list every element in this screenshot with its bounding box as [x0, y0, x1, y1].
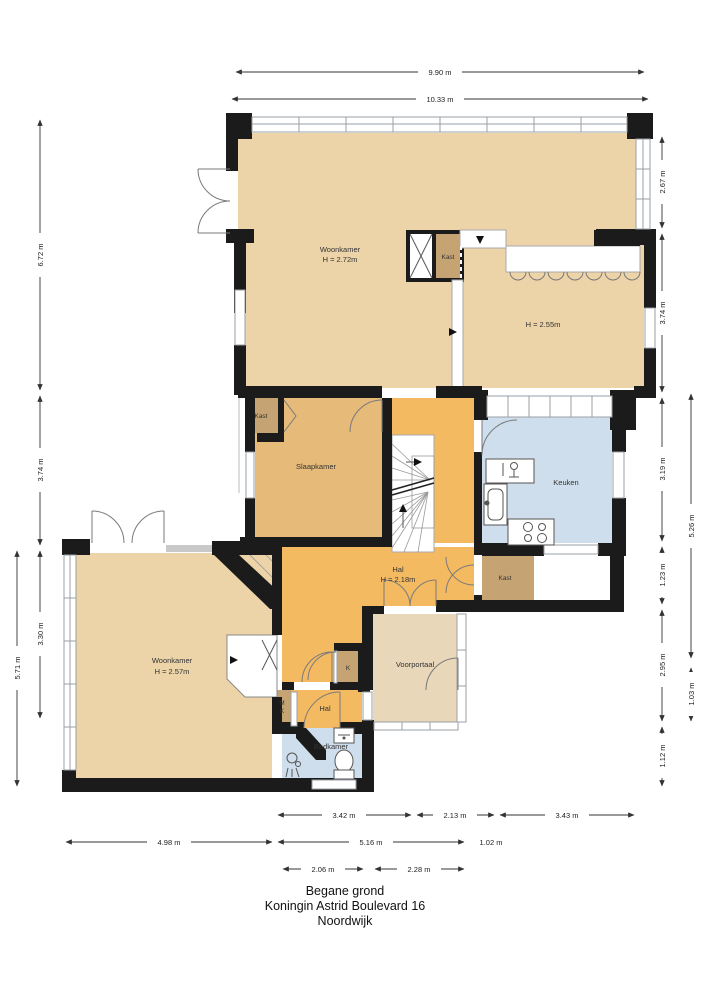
dim-bottom-1: 3.42 m [333, 811, 356, 820]
dim-top-inner: 10.33 m [426, 95, 453, 104]
dim-right-1: 2.67 m [658, 171, 667, 194]
label-kast-mk-k: K [280, 708, 285, 715]
bathroom-sink-icon [334, 728, 354, 743]
label-kast-mk-m: M [279, 700, 284, 707]
dim-right-6: 1.12 m [658, 745, 667, 768]
dim-right-7: 5.26 m [687, 515, 696, 538]
dim-top-outer: 9.90 m [429, 68, 452, 77]
label-woonkamer-bottom-height: H = 2.57m [155, 667, 190, 676]
dim-right-5: 2.95 m [658, 654, 667, 677]
label-badkamer: Badkamer [314, 742, 349, 751]
label-keuken: Keuken [553, 478, 578, 487]
dim-bottom-5: 5.16 m [360, 838, 383, 847]
stove-icon [508, 519, 554, 545]
dim-bottom-6: 1.02 m [480, 838, 503, 847]
dim-bottom-2: 2.13 m [444, 811, 467, 820]
dim-left-3: 3.30 m [36, 623, 45, 646]
label-hal-height: H = 2.18m [381, 575, 416, 584]
label-hal: Hal [392, 565, 404, 574]
label-room-right-height: H = 2.55m [526, 320, 561, 329]
title-floor: Begane grond [306, 884, 385, 898]
dim-left-2: 3.74 m [36, 459, 45, 482]
staircase [392, 435, 434, 552]
toilet-icon [334, 750, 354, 779]
dim-bottom-3: 3.43 m [556, 811, 579, 820]
dim-bottom-8: 2.28 m [408, 865, 431, 874]
dim-bottom-4: 4.98 m [158, 838, 181, 847]
stair-landing [460, 230, 506, 248]
dim-right-2: 3.74 m [658, 302, 667, 325]
dim-right-4: 1.23 m [658, 564, 667, 587]
shaft-x-box [408, 232, 434, 280]
label-woonkamer-top: Woonkamer [320, 245, 361, 254]
label-hal-klein: Hal [319, 704, 331, 713]
title-address: Koningin Astrid Boulevard 16 [265, 899, 426, 913]
floor-plan-drawing: Woonkamer H = 2.72m Kast H = 2.55m Slaap… [0, 0, 707, 1000]
title-block: Begane grond Koningin Astrid Boulevard 1… [265, 884, 426, 928]
label-slaapkamer: Slaapkamer [296, 462, 337, 471]
label-kast-slaapkamer: Kast [254, 413, 267, 420]
floor-plan-page: Woonkamer H = 2.72m Kast H = 2.55m Slaap… [0, 0, 707, 1000]
dishwasher-icon [486, 459, 534, 483]
room-hal-main [282, 547, 474, 606]
passage-strip [452, 280, 463, 388]
title-city: Noordwijk [318, 914, 374, 928]
wardrobe-band [506, 246, 640, 272]
dim-right-8: 1.03 m [687, 683, 696, 706]
label-woonkamer-bottom: Woonkamer [152, 656, 193, 665]
dim-left-4: 5.71 m [13, 657, 22, 680]
kitchen-sink-icon [484, 484, 507, 525]
label-kast-k: K [346, 665, 351, 672]
dim-left-1: 6.72 m [36, 244, 45, 267]
label-kast-hal: Kast [498, 575, 511, 582]
dim-right-3: 3.19 m [658, 458, 667, 481]
label-woonkamer-top-height: H = 2.72m [323, 255, 358, 264]
label-kast-top: Kast [441, 254, 454, 261]
dim-bottom-7: 2.06 m [312, 865, 335, 874]
label-voorportaal: Voorportaal [396, 660, 435, 669]
